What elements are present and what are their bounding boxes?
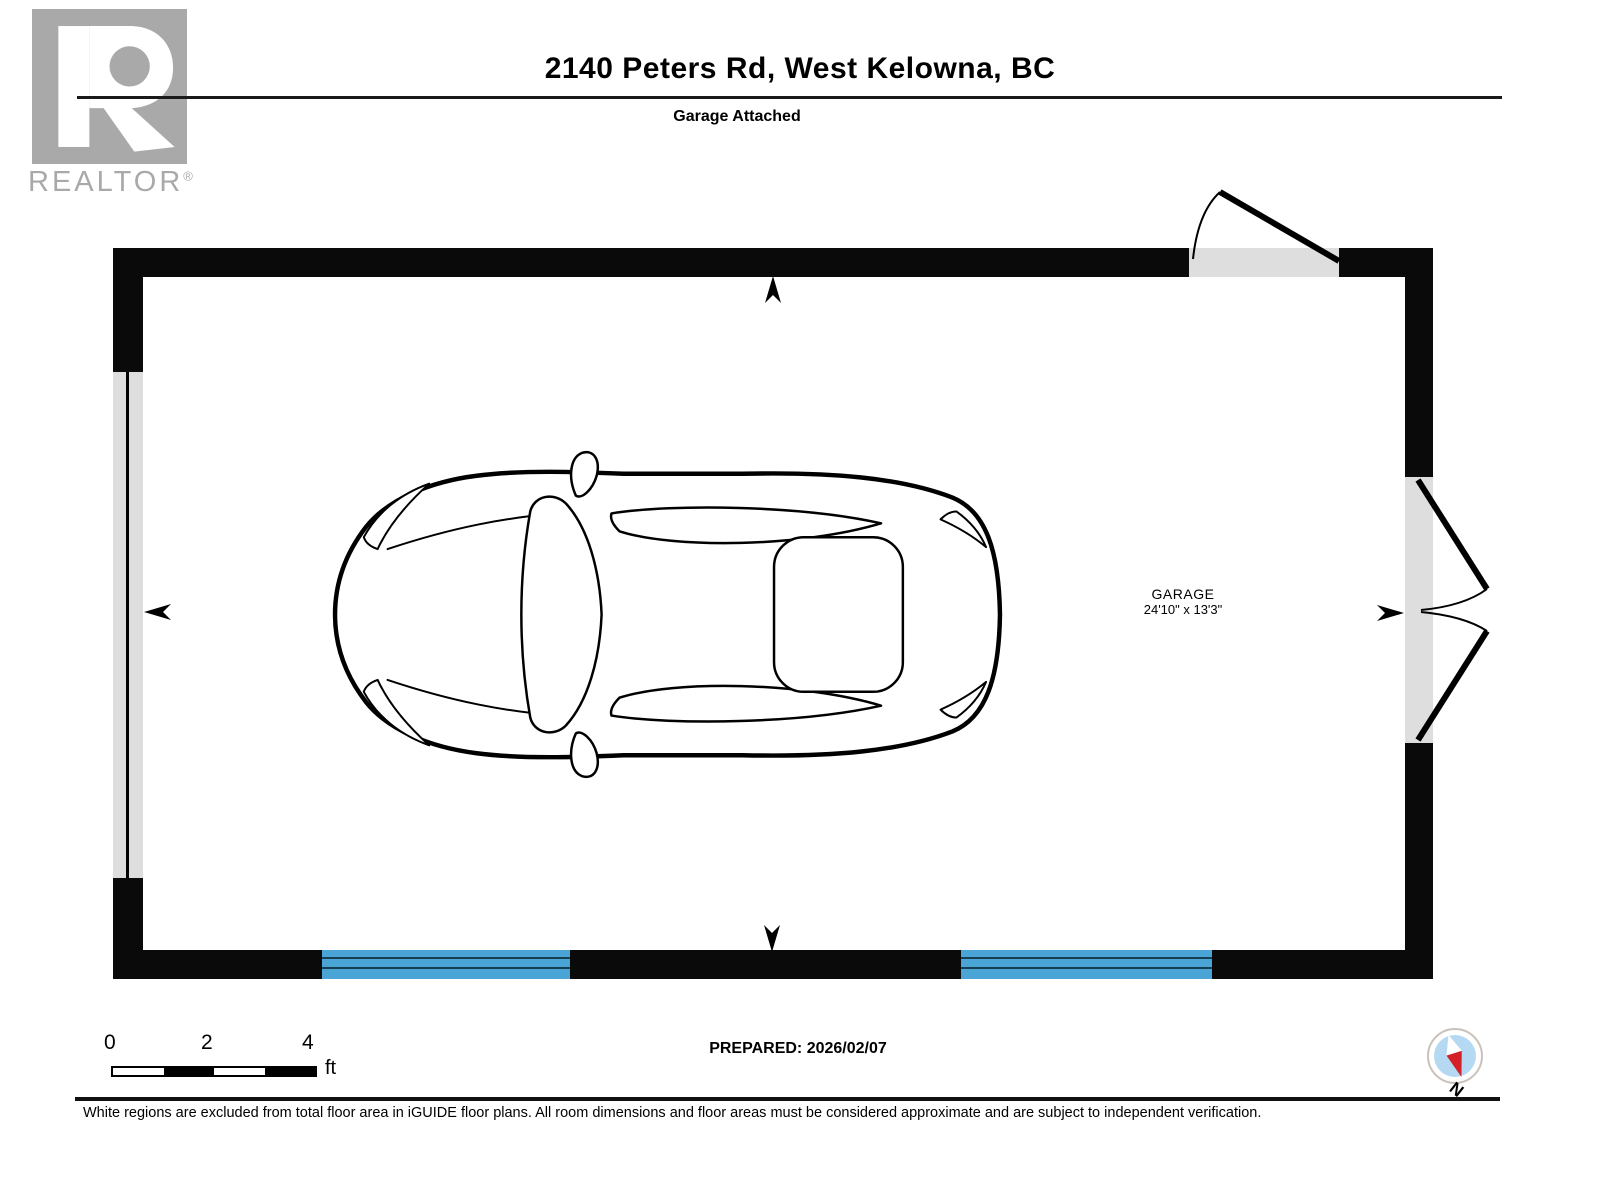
wall-top-left <box>113 248 1189 277</box>
window-left-glass-line <box>126 372 129 878</box>
scale-segment <box>265 1068 316 1075</box>
page-title: 2140 Peters Rd, West Kelowna, BC <box>0 52 1600 86</box>
window-left <box>113 372 143 878</box>
wall-bottom-1 <box>113 950 322 979</box>
room-dimensions: 24'10" x 13'3" <box>1108 602 1258 618</box>
scale-bar <box>111 1066 317 1077</box>
floor-subtitle: Garage Attached <box>437 108 1037 126</box>
car-top-view <box>326 450 1010 779</box>
window-bottom-right <box>961 950 1212 979</box>
scale-tick-2: 2 <box>201 1031 213 1055</box>
prepared-date: PREPARED: 2026/02/07 <box>598 1040 998 1058</box>
window-pane-line <box>961 967 1212 969</box>
window-bottom-left <box>322 950 570 979</box>
wall-right-lower <box>1405 743 1433 979</box>
car-rear-window <box>774 537 903 692</box>
door-opening-right <box>1405 477 1433 743</box>
disclaimer-text: White regions are excluded from total fl… <box>83 1105 1533 1121</box>
room-name: GARAGE <box>1108 586 1258 602</box>
wall-bottom-2 <box>570 950 961 979</box>
scale-tick-0: 0 <box>104 1031 116 1055</box>
scale-segment <box>113 1068 164 1075</box>
wall-right-upper <box>1405 248 1433 477</box>
window-pane-line <box>961 957 1212 959</box>
realtor-brand-text: REALTOR <box>28 166 183 198</box>
scale-segment <box>214 1068 265 1075</box>
scale-segment <box>164 1068 215 1075</box>
window-pane-line <box>322 957 570 959</box>
title-divider <box>77 96 1502 99</box>
window-pane-line <box>322 967 570 969</box>
registered-mark: ® <box>183 168 196 183</box>
realtor-logo <box>32 8 187 165</box>
footer-divider <box>75 1097 1500 1101</box>
scale-unit: ft <box>325 1057 336 1080</box>
wall-left-upper <box>113 248 143 372</box>
room-label: GARAGE 24'10" x 13'3" <box>1108 586 1258 618</box>
wall-bottom-3 <box>1212 950 1433 979</box>
scale-tick-4: 4 <box>302 1031 314 1055</box>
floorplan-page: REALTOR® 2140 Peters Rd, West Kelowna, B… <box>0 0 1600 1200</box>
realtor-wordmark: REALTOR® <box>28 166 248 199</box>
door-opening-top <box>1189 248 1339 277</box>
